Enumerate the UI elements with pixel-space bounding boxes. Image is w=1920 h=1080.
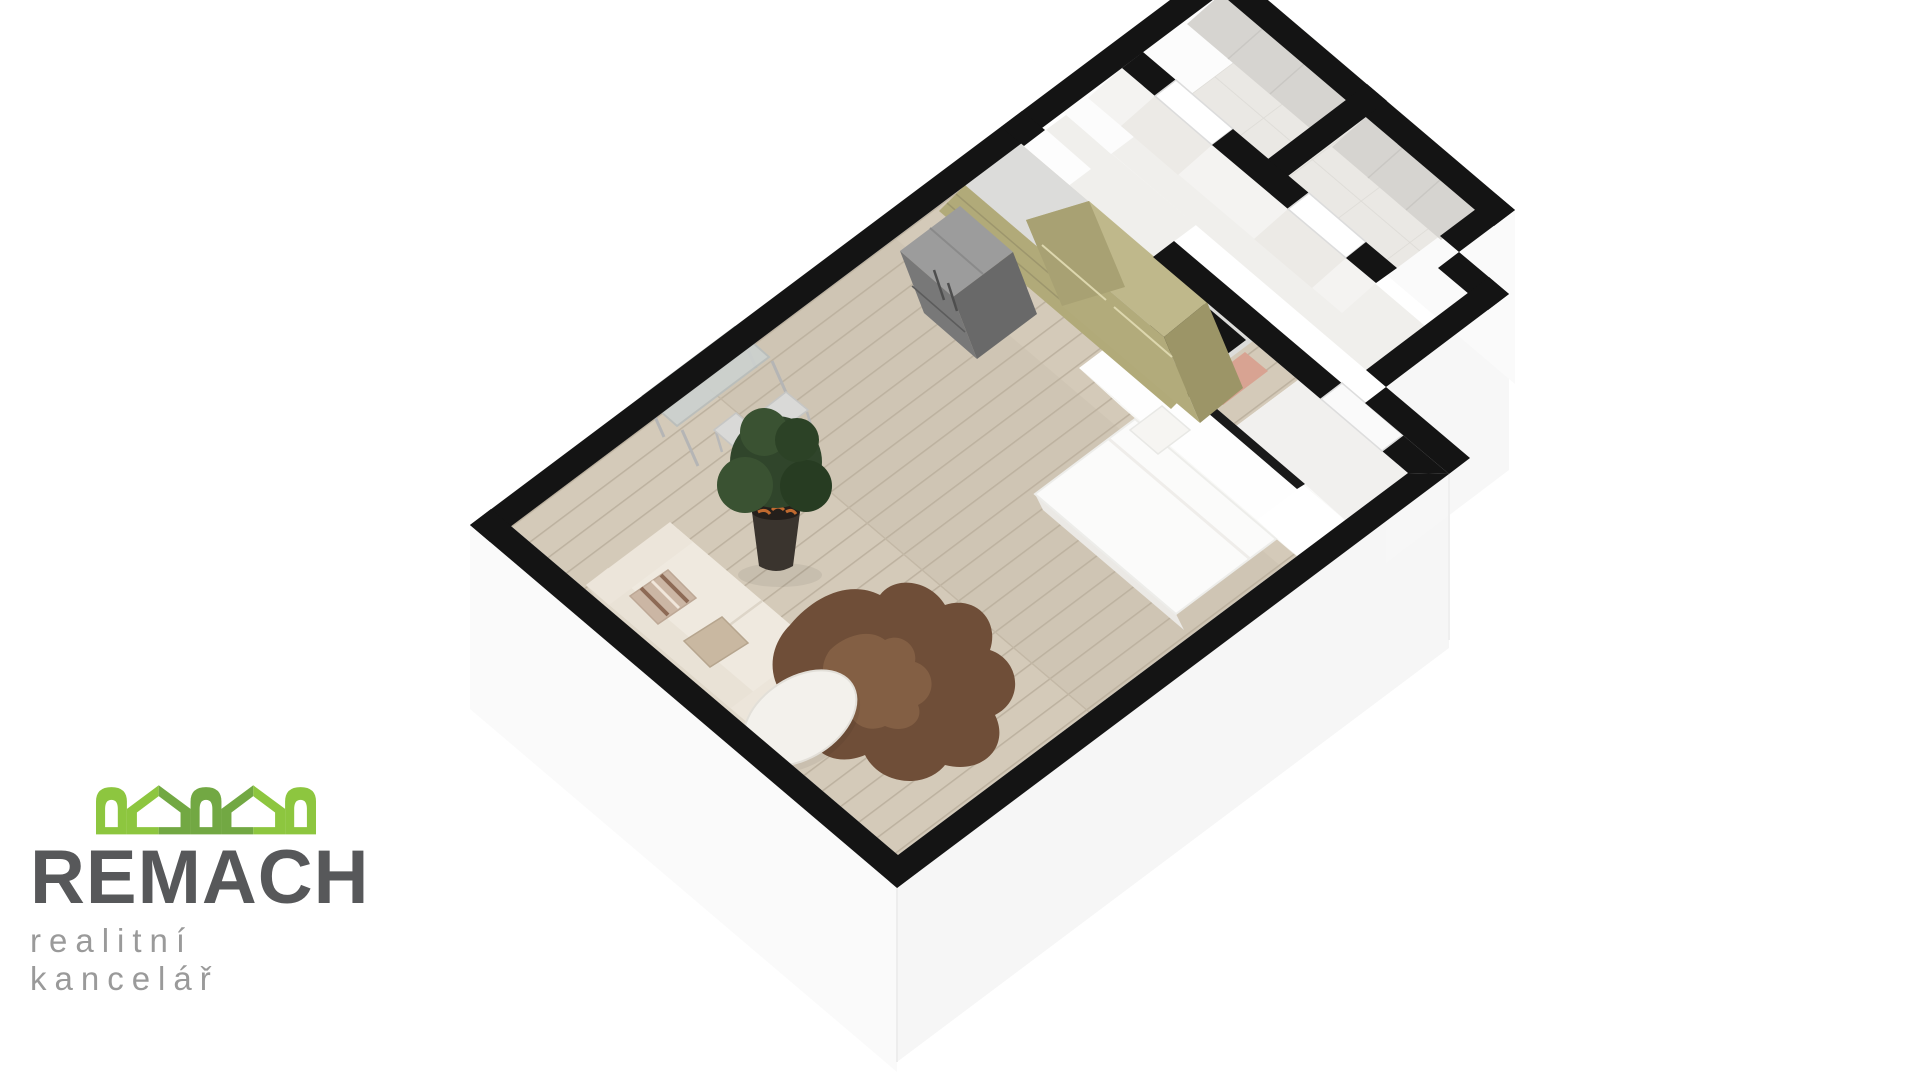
logo-houses-icon xyxy=(96,780,316,836)
logo-title: REMACH xyxy=(30,840,390,916)
logo: REMACH realitní kancelář xyxy=(30,780,390,998)
page: REMACH realitní kancelář xyxy=(0,0,1920,1080)
logo-subtitle: realitní kancelář xyxy=(30,922,390,998)
